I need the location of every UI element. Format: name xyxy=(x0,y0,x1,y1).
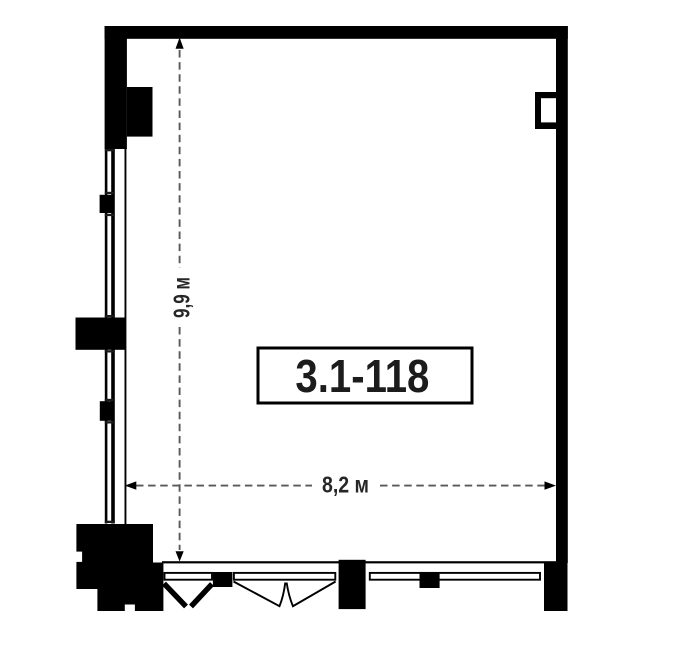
svg-text:9,9 м: 9,9 м xyxy=(169,277,195,318)
svg-text:8,2 м: 8,2 м xyxy=(322,472,369,498)
svg-text:3.1-118: 3.1-118 xyxy=(295,350,429,402)
